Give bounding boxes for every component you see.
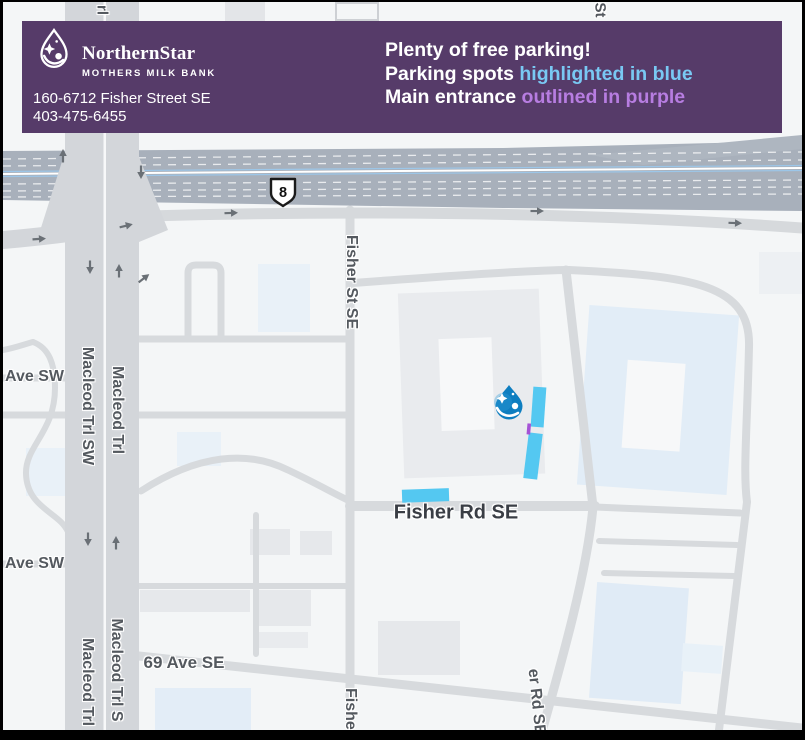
frame-border-top (0, 0, 805, 2)
road-label-macleod-trl-s: Macleod Trl S (107, 618, 125, 721)
parking-highlight-north (531, 387, 547, 428)
brand-name: NorthernStar (82, 43, 216, 65)
parking-info-text: Plenty of free parking! Parking spots hi… (385, 39, 693, 110)
parking-spots-prefix: Parking spots (385, 63, 519, 85)
northernstar-logo-icon (35, 27, 73, 71)
info-banner: NorthernStar MOTHERS MILK BANK 160-6712 … (22, 21, 782, 133)
phone-number: 403-475-6455 (33, 108, 211, 126)
main-entrance-prefix: Main entrance (385, 86, 522, 108)
brand-block: NorthernStar MOTHERS MILK BANK (82, 43, 216, 79)
main-entrance-highlight: outlined in purple (522, 86, 686, 108)
frame-border-left (0, 0, 3, 740)
main-entrance-line: Main entrance outlined in purple (385, 86, 693, 110)
road-label-fisher-st-se: Fisher St SE (342, 235, 360, 329)
brand-subtitle: MOTHERS MILK BANK (82, 68, 216, 79)
road-label-st-partial: St (591, 2, 609, 18)
road-label-macleod-trl-sw: Macleod Trl SW (78, 347, 96, 465)
parking-spots-line: Parking spots highlighted in blue (385, 63, 693, 87)
road-label-ave-sw-upper: Ave SW (5, 368, 64, 386)
road-label-fisher-rd-se: Fisher Rd SE (394, 502, 518, 525)
parking-spots-highlight: highlighted in blue (519, 63, 692, 85)
parking-headline: Plenty of free parking! (385, 39, 693, 63)
road-label-trl-partial: rl (94, 5, 111, 15)
highway-shield-number: 8 (279, 185, 287, 201)
frame-border-bottom (0, 730, 805, 740)
flyer-map-image: 8 rl St Fisher St SE Macleo (0, 0, 805, 740)
road-label-macleod-trl-lower: Macleod Trl (78, 638, 96, 726)
road-label-ave-sw-lower: Ave SW (5, 555, 64, 573)
address-block: 160-6712 Fisher Street SE 403-475-6455 (33, 90, 211, 126)
road-label-69-ave-se: 69 Ave SE (144, 653, 225, 673)
road-label-macleod-trl-upper: Macleod Trl (108, 366, 126, 454)
address-line: 160-6712 Fisher Street SE (33, 90, 211, 108)
map-canvas: 8 rl St Fisher St SE Macleo (3, 2, 802, 730)
road-label-fisher-partial: Fisher (341, 688, 359, 730)
